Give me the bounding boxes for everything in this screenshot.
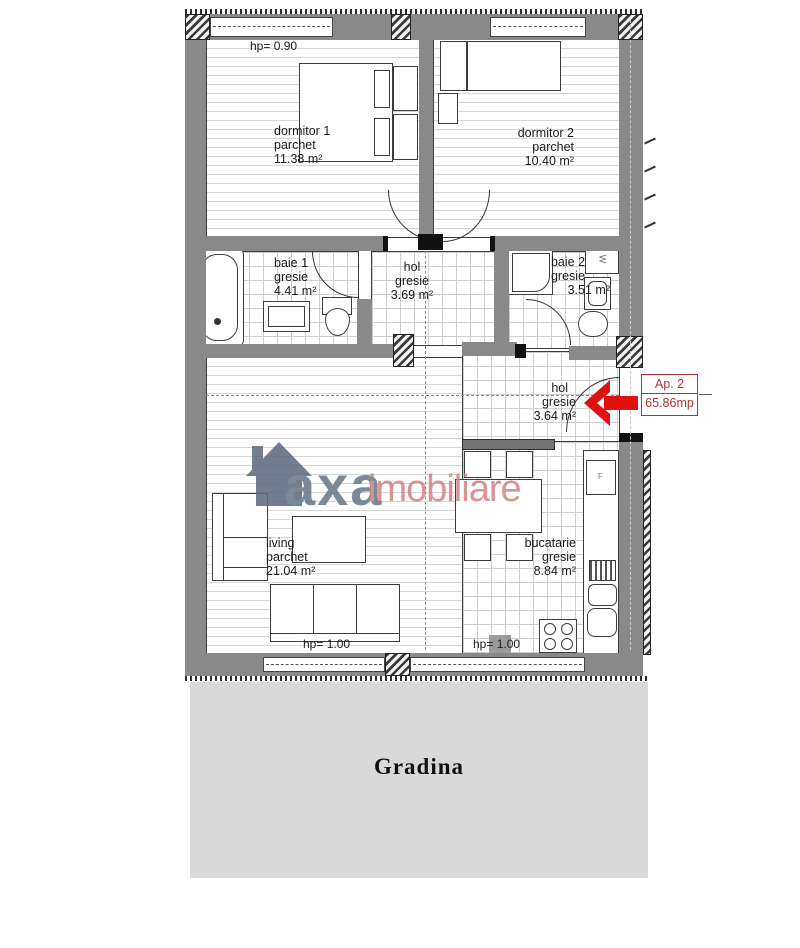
- corner-sofa: [212, 493, 268, 581]
- room-area: 10.40 m²: [484, 154, 574, 168]
- window-axis: [493, 26, 583, 27]
- insulation-strip-top: [185, 9, 643, 14]
- sofa-divider: [356, 585, 357, 633]
- nightstand: [438, 93, 458, 124]
- wall-baie2-left: [494, 251, 509, 349]
- room-area: 8.84 m²: [494, 564, 576, 578]
- room-label-baie-1: baie 1 gresie 4.41 m²: [274, 256, 316, 298]
- wall-right-upper: [619, 14, 643, 365]
- insulation-strip-right: [643, 450, 651, 655]
- sofa-cushion-line: [223, 567, 267, 568]
- room-floor: parchet: [274, 138, 330, 152]
- wall-h2-right: [569, 346, 618, 360]
- room-name: baie 2: [526, 255, 610, 269]
- bed-headboard: [440, 41, 467, 91]
- wall-right-lower: [619, 433, 643, 676]
- pillow: [374, 70, 390, 108]
- sink-drainer: [589, 560, 616, 581]
- room-label-dormitor-1: dormitor 1 parchet 11.38 m²: [274, 124, 330, 166]
- door-jamb: [383, 236, 388, 251]
- room-name: hol: [518, 381, 576, 395]
- room-floor: gresie: [494, 550, 576, 564]
- wall-divider-cap: [418, 234, 443, 250]
- parapet-label-living: hp= 1.00: [303, 638, 350, 652]
- dimension-tick: [644, 166, 656, 173]
- wall-pier-hatch: [393, 334, 414, 367]
- room-label-bucatarie: bucatarie gresie 8.84 m²: [494, 536, 576, 578]
- window-axis: [213, 26, 330, 27]
- insulation-strip-bottom: [185, 676, 648, 681]
- wall-cap: [515, 344, 526, 358]
- room-area: 3.51 m²: [526, 283, 610, 297]
- window-dormitor-1: [210, 17, 333, 37]
- pier-hatch-top: [391, 14, 411, 40]
- wall-left: [185, 14, 206, 676]
- room-name: hol: [371, 260, 453, 274]
- room-name: living: [266, 536, 315, 550]
- room-name: baie 1: [274, 256, 316, 270]
- room-label-hol-2: hol gresie 3.64 m²: [518, 381, 576, 423]
- room-label-baie-2: baie 2 gresie 3.51 m²: [526, 255, 610, 297]
- sofa-divider: [313, 585, 314, 633]
- burner: [561, 623, 573, 635]
- room-area: 11.38 m²: [274, 152, 330, 166]
- apartment-tag-name: Ap. 2: [642, 375, 697, 394]
- nightstand: [393, 66, 418, 111]
- wall-bedroom-divider: [419, 39, 433, 239]
- door-jamb: [490, 236, 495, 251]
- room-floor: gresie: [526, 269, 610, 283]
- parapet-label-top: hp= 0.90: [250, 40, 297, 54]
- parapet-label-kitchen: hp= 1.00: [473, 638, 520, 652]
- pier-hatch-bottom: [385, 653, 410, 676]
- wall-h1-left: [206, 236, 388, 251]
- wall-centerline: [630, 20, 631, 650]
- three-seat-sofa: [270, 584, 400, 634]
- room-label-living: living parchet 21.04 m²: [266, 536, 315, 578]
- arrow-shaft: [604, 396, 638, 410]
- apartment-tag-area: 65.86mp: [642, 394, 697, 412]
- room-floor: gresie: [371, 274, 453, 288]
- room-label-dormitor-2: dormitor 2 parchet 10.40 m²: [484, 126, 574, 168]
- bathtub-drain: [214, 318, 221, 325]
- garden-area: Gradina: [190, 682, 648, 878]
- stove: [539, 619, 577, 653]
- fridge: F: [586, 460, 616, 495]
- apartment-tag: Ap. 2 65.86mp: [641, 374, 698, 416]
- corner-hatch-tl: [185, 14, 210, 40]
- single-bed: [467, 41, 561, 91]
- room-name: dormitor 1: [274, 124, 330, 138]
- room-area: 3.69 m²: [371, 288, 453, 302]
- wall-kitchen-top: [462, 439, 555, 450]
- window-dormitor-2: [490, 17, 586, 37]
- room-floor: gresie: [518, 395, 576, 409]
- dimension-tick: [644, 138, 656, 145]
- room-label-hol-1: hol gresie 3.69 m²: [371, 260, 453, 302]
- dimension-tick: [644, 222, 656, 229]
- sink-bowl: [588, 584, 617, 606]
- bathroom-sink-basin: [268, 306, 305, 327]
- entrance-jamb-cap: [619, 433, 643, 442]
- room-area: 3.64 m²: [518, 409, 576, 423]
- window-axis: [266, 664, 382, 665]
- dimension-stub: [699, 394, 712, 395]
- room-floor: gresie: [274, 270, 316, 284]
- window-axis: [413, 664, 582, 665]
- room-name: dormitor 2: [484, 126, 574, 140]
- room-name: bucatarie: [494, 536, 576, 550]
- sofa-cushion-line: [223, 537, 267, 538]
- room-floor: parchet: [484, 140, 574, 154]
- room-area: 21.04 m²: [266, 564, 315, 578]
- toilet-2: [578, 311, 608, 337]
- wall-h2-mid: [462, 342, 517, 356]
- bathtub-inner: [201, 254, 238, 341]
- wall-h2-left: [206, 344, 394, 358]
- room-floor: parchet: [266, 550, 315, 564]
- chair: [464, 534, 491, 561]
- pillow: [374, 118, 390, 156]
- nightstand: [393, 114, 418, 160]
- burner: [544, 638, 556, 650]
- wall-h1-right: [490, 236, 620, 251]
- burner: [544, 623, 556, 635]
- fridge-label: F: [598, 472, 603, 481]
- brand-text-imobiliare: imobiliare: [368, 470, 521, 508]
- dimension-tick: [644, 194, 656, 201]
- house-icon-chimney: [252, 446, 263, 474]
- burner: [561, 638, 573, 650]
- wall-baie1-right: [357, 299, 372, 349]
- room-area: 4.41 m²: [274, 284, 316, 298]
- floor-plan-canvas: W F: [0, 0, 800, 948]
- sink-bowl: [587, 608, 617, 637]
- garden-label: Gradina: [190, 682, 648, 780]
